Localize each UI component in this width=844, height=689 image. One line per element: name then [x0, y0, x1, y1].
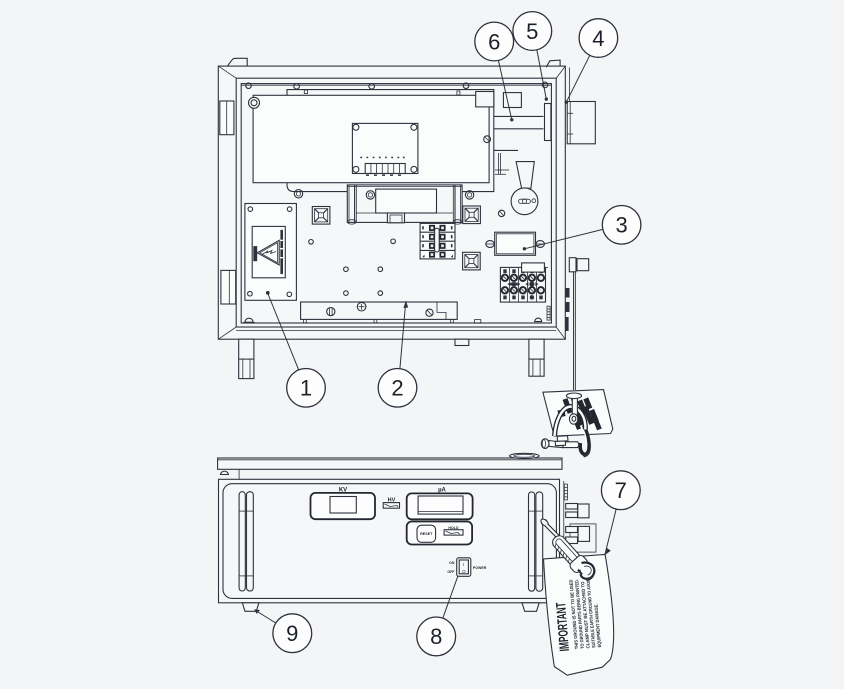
- svg-text:I: I: [463, 562, 464, 567]
- svg-text:RESET: RESET: [420, 532, 433, 536]
- svg-text:OFF: OFF: [447, 570, 455, 574]
- svg-text:O: O: [462, 569, 466, 574]
- svg-text:1: 1: [300, 376, 312, 401]
- svg-text:POWER: POWER: [473, 566, 487, 570]
- svg-text:9: 9: [286, 621, 298, 646]
- svg-text:3: 3: [615, 213, 627, 238]
- svg-text:ON: ON: [449, 561, 455, 565]
- svg-text:8: 8: [430, 624, 442, 649]
- svg-text:2: 2: [391, 376, 403, 401]
- svg-text:5: 5: [526, 19, 538, 44]
- svg-text:4: 4: [592, 26, 604, 51]
- svg-text:6: 6: [488, 29, 500, 54]
- svg-text:7: 7: [615, 478, 627, 503]
- svg-text:µA: µA: [438, 487, 446, 493]
